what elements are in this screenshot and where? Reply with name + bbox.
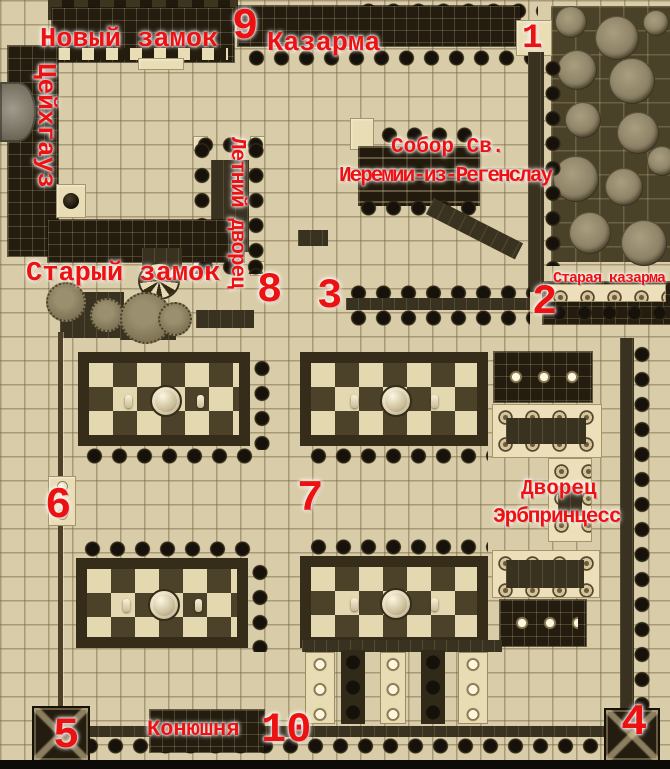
statue	[197, 395, 204, 408]
bush-strip	[421, 650, 445, 724]
tree	[605, 168, 643, 206]
zeughaus-label: Цейхгауз	[33, 63, 59, 188]
barracks-label: Казарма	[267, 31, 380, 58]
spiky-tree	[90, 298, 124, 332]
hedge-row	[547, 304, 666, 322]
palace-north-wing	[494, 352, 592, 402]
tree	[555, 6, 587, 38]
statue	[351, 395, 358, 408]
palace-court	[506, 560, 584, 588]
fountain	[148, 589, 180, 621]
statue	[431, 395, 438, 408]
tree	[621, 220, 667, 266]
marker-6-label: 6	[45, 484, 71, 528]
tree	[643, 10, 669, 36]
hedge-row	[306, 538, 488, 556]
column-row	[502, 368, 584, 386]
marker-3-label: 3	[317, 275, 342, 317]
column-row	[508, 614, 578, 632]
zeughaus-annex	[56, 184, 86, 218]
forest-area	[551, 6, 670, 262]
small-wall	[298, 230, 328, 246]
summer-palace-label: Летний дворец	[226, 137, 247, 288]
marker-1-label: 1	[522, 22, 542, 56]
hedge-row	[80, 540, 252, 558]
statue	[125, 395, 132, 408]
palace-label-line2: Эрбпринцесс	[493, 507, 621, 528]
tree	[565, 102, 601, 138]
tree	[595, 16, 639, 60]
statue	[123, 599, 130, 612]
tree-allee	[541, 56, 565, 266]
marker-2-label: 2	[532, 281, 557, 323]
new-castle-label: Новый замок	[40, 27, 218, 54]
parterre-ne	[300, 352, 488, 446]
old-barracks-building	[543, 282, 670, 324]
post-strip	[458, 652, 488, 724]
marker-4-label: 4	[621, 701, 647, 745]
cathedral-label-line2: Иеремии-из-Регенслау	[339, 166, 551, 187]
tree	[647, 146, 670, 176]
parterre-se	[300, 556, 488, 648]
marker-10-label: 10	[261, 709, 311, 751]
statue	[431, 598, 438, 611]
hedge-row	[82, 446, 258, 466]
palace-court	[506, 418, 586, 444]
post-strip	[380, 652, 406, 724]
parterre-sw	[76, 558, 248, 648]
spiky-tree	[158, 302, 192, 336]
hedge-row	[250, 560, 270, 652]
tree	[569, 212, 611, 254]
tree	[609, 58, 655, 104]
palace-south-wing	[500, 600, 586, 646]
old-castle-label: Старый замок	[26, 261, 220, 288]
cathedral-label-line1: Собор Св.	[391, 137, 504, 158]
statue	[195, 599, 202, 612]
parterre-nw	[78, 352, 250, 446]
hedge-wall	[302, 640, 502, 652]
hedge-row	[247, 138, 265, 274]
stable-label: Конюшня	[147, 719, 239, 741]
palace-label-line1: Дворец	[521, 479, 597, 500]
marker-8-label: 8	[257, 269, 282, 311]
map-edge	[0, 760, 670, 769]
castle-portico	[138, 58, 184, 70]
hedge-row	[306, 446, 488, 466]
bush	[63, 193, 79, 209]
palace-lower-colonnade	[492, 550, 600, 598]
marker-7-label: 7	[297, 477, 323, 521]
hedge-row	[346, 308, 530, 328]
palace-map-canvas[interactable]: Новый замок 9 Казарма 1 Цейхгауз Собор С…	[0, 0, 670, 769]
old-barracks-label: Старая казарма	[553, 271, 665, 286]
fountain	[150, 385, 182, 417]
fountain	[380, 385, 412, 417]
bush-strip	[341, 650, 365, 724]
tree-allee	[630, 342, 654, 708]
hedge-wall	[196, 310, 254, 328]
marker-5-label: 5	[53, 714, 79, 758]
marker-9-label: 9	[232, 5, 258, 49]
fountain	[380, 588, 412, 620]
statue	[351, 598, 358, 611]
palace-upper-colonnade	[492, 404, 602, 458]
hedge-row	[252, 356, 272, 450]
